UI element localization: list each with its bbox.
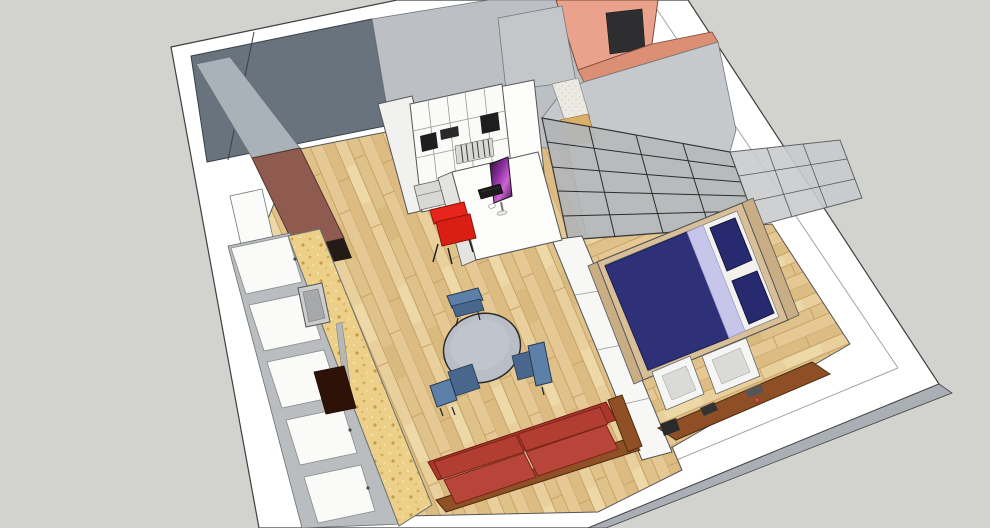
scene-svg bbox=[0, 0, 990, 528]
sideboard-round-item bbox=[755, 398, 760, 403]
tower-window bbox=[606, 9, 645, 54]
apartment-3d-render bbox=[0, 0, 990, 528]
computer-screen bbox=[490, 157, 512, 203]
cabinet-knob-5 bbox=[366, 486, 369, 489]
cabinet-knob-4 bbox=[348, 428, 351, 431]
bath-wall bbox=[498, 6, 576, 90]
